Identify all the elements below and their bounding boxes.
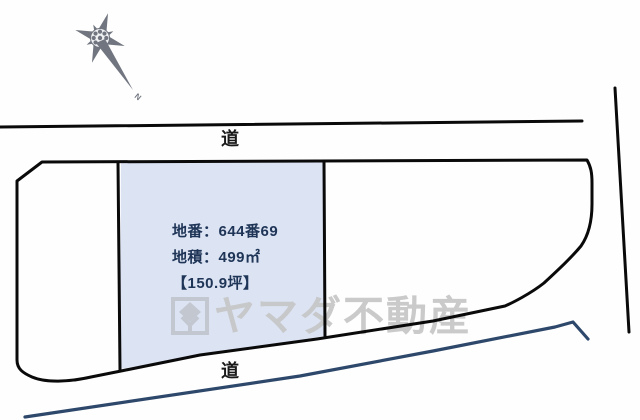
- road-label-top: 道: [221, 129, 239, 149]
- parcel-divider-left: [118, 162, 120, 370]
- linework-layer: N: [0, 0, 640, 420]
- road-label-bottom: 道: [221, 361, 239, 381]
- parcel-area: 地積：499㎡: [172, 245, 342, 271]
- road-top-line: [0, 121, 582, 127]
- compass-icon: N: [67, 5, 143, 102]
- land-plot-diagram: ヤマダ不動産: [0, 0, 640, 420]
- parcel-lot-number: 地番：644番69: [172, 219, 342, 245]
- compass-north-label: N: [133, 92, 143, 103]
- water-boundary-line: [25, 322, 588, 417]
- parcel-info: 地番：644番69 地積：499㎡ 【150.9坪】: [172, 219, 342, 297]
- right-boundary-line: [615, 88, 629, 332]
- parcel-tsubo: 【150.9坪】: [172, 271, 342, 297]
- compass-needle: [96, 39, 133, 90]
